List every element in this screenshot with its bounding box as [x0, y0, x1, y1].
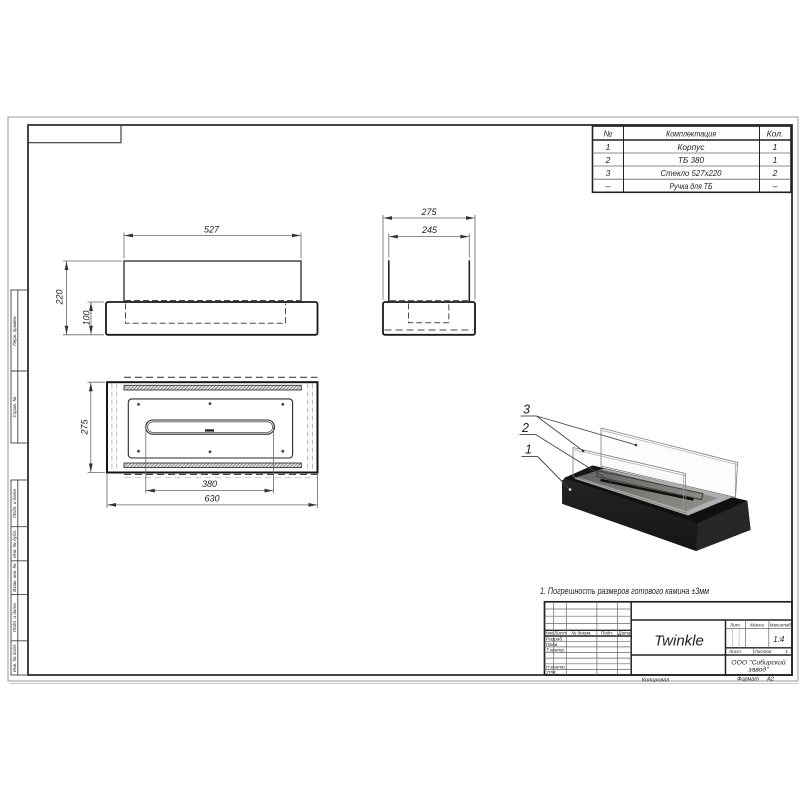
svg-text:380: 380	[202, 479, 217, 489]
svg-text:3: 3	[523, 403, 530, 417]
svg-text:Листов: Листов	[754, 649, 772, 654]
svg-text:Разраб.: Разраб.	[546, 637, 563, 643]
svg-text:Т.контр.: Т.контр.	[546, 648, 565, 654]
svg-text:Взам. инв. №: Взам. инв. №	[12, 563, 17, 591]
svg-text:Формат: Формат	[737, 677, 759, 683]
svg-text:Масштаб: Масштаб	[770, 623, 792, 628]
svg-text:1. Погрешность размеров готово: 1. Погрешность размеров готового камина …	[540, 586, 709, 596]
svg-text:ТБ 380: ТБ 380	[678, 155, 704, 165]
svg-text:–: –	[772, 181, 778, 191]
svg-text:1: 1	[606, 142, 611, 152]
svg-text:Лит.: Лит.	[729, 623, 741, 628]
svg-text:Подп. и дата: Подп. и дата	[12, 603, 17, 632]
svg-text:275: 275	[420, 207, 437, 217]
svg-text:1:4: 1:4	[773, 634, 784, 644]
svg-text:1: 1	[525, 443, 532, 457]
svg-text:2: 2	[521, 421, 529, 435]
svg-text:245: 245	[421, 225, 438, 235]
svg-text:Справ. №: Справ. №	[12, 397, 17, 418]
svg-text:ООО "Сибирский: ООО "Сибирский	[731, 658, 786, 666]
svg-text:Корпус: Корпус	[678, 142, 706, 152]
svg-text:Дата: Дата	[617, 631, 631, 636]
svg-text:2: 2	[605, 155, 611, 165]
svg-text:1: 1	[773, 155, 778, 165]
svg-text:Подп. и дата: Подп. и дата	[12, 489, 17, 518]
svg-text:Утв.: Утв.	[546, 670, 557, 676]
svg-text:Перв. примен.: Перв. примен.	[12, 315, 17, 346]
svg-text:№ докум.: № докум.	[571, 631, 591, 636]
svg-text:1: 1	[785, 649, 788, 654]
svg-text:527: 527	[204, 225, 220, 235]
svg-text:Twinkle: Twinkle	[654, 633, 704, 650]
svg-text:Ручка для ТБ: Ручка для ТБ	[670, 181, 713, 191]
svg-text:№: №	[603, 129, 612, 139]
svg-text:Комплектация: Комплектация	[666, 129, 716, 139]
svg-text:Пров.: Пров.	[546, 642, 559, 648]
svg-text:А2: А2	[766, 677, 774, 683]
svg-text:Стекло 527х220: Стекло 527х220	[661, 168, 722, 178]
svg-text:завод": завод"	[747, 666, 769, 674]
svg-text:Н.контр.: Н.контр.	[546, 664, 566, 670]
svg-text:Подп.: Подп.	[601, 631, 613, 636]
svg-text:3: 3	[606, 168, 611, 178]
svg-text:Инв. № подл.: Инв. № подл.	[12, 644, 17, 673]
svg-text:1: 1	[773, 142, 778, 152]
svg-text:630: 630	[204, 493, 219, 503]
svg-text:Копировал: Копировал	[642, 677, 669, 683]
svg-text:Масса: Масса	[750, 623, 764, 628]
svg-text:Лист: Лист	[553, 631, 566, 636]
svg-text:Лист: Лист	[728, 649, 741, 654]
svg-text:275: 275	[79, 419, 89, 436]
svg-text:–: –	[605, 181, 611, 191]
svg-text:Кол.: Кол.	[767, 129, 784, 139]
svg-text:Инв. № дубл.: Инв. № дубл.	[12, 530, 17, 558]
svg-text:2: 2	[772, 168, 778, 178]
svg-text:220: 220	[55, 289, 65, 305]
svg-text:Изм.: Изм.	[544, 631, 554, 636]
svg-text:100: 100	[82, 310, 92, 325]
